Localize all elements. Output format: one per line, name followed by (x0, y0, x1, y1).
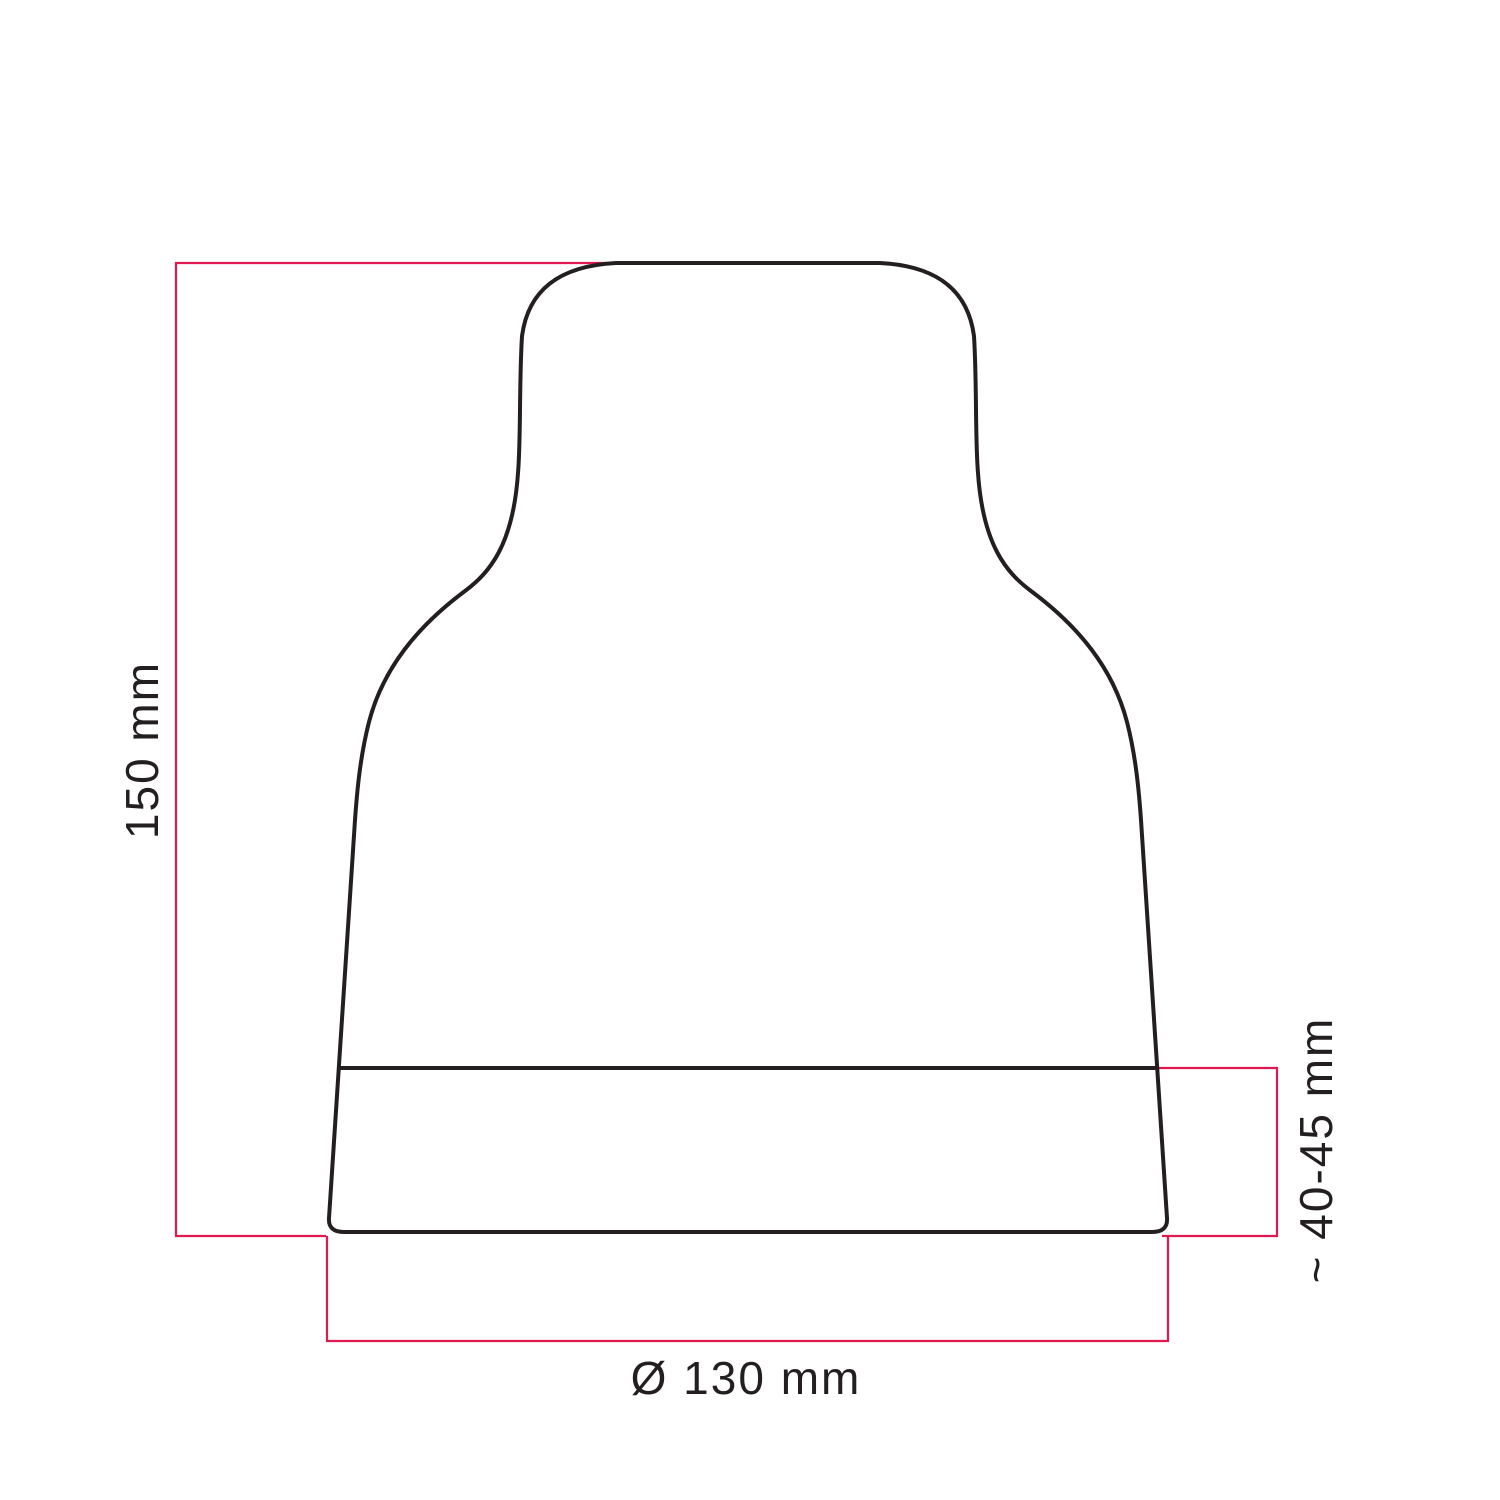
base-height-dimension-label: ~ 40-45 mm (1290, 1017, 1342, 1284)
base-height-dimension-bracket (1156, 1068, 1277, 1236)
dimension-drawing-canvas: 150 mm ~ 40-45 mm Ø 130 mm (0, 0, 1500, 1500)
diameter-dimension-label: Ø 130 mm (631, 1352, 862, 1404)
height-dimension-label: 150 mm (116, 661, 168, 839)
diameter-dimension-bracket (327, 1236, 1168, 1341)
technical-drawing-page: 150 mm ~ 40-45 mm Ø 130 mm (0, 0, 1500, 1500)
lampshade-outline (329, 263, 1167, 1232)
